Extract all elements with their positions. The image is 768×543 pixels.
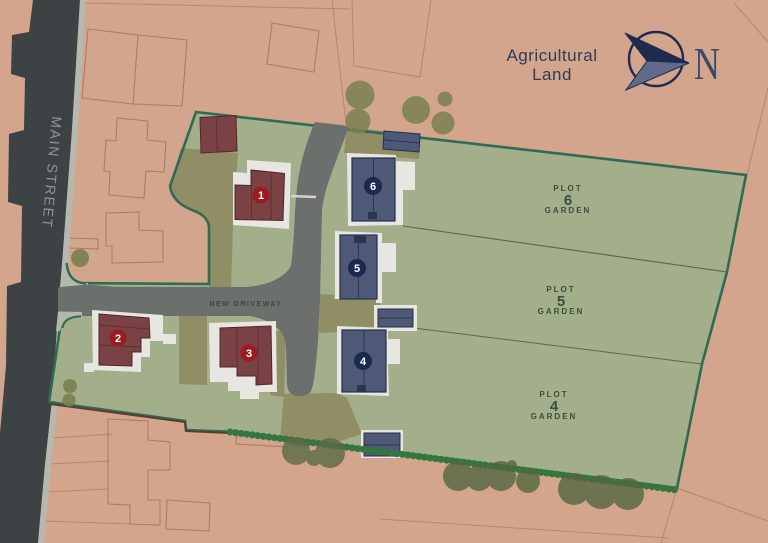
svg-text:2: 2: [115, 333, 121, 345]
svg-text:GARDEN: GARDEN: [531, 412, 578, 421]
svg-text:N: N: [694, 38, 720, 89]
svg-text:GARDEN: GARDEN: [545, 206, 592, 215]
svg-text:NEW DRIVEWAY: NEW DRIVEWAY: [210, 301, 283, 308]
svg-text:5: 5: [354, 263, 360, 275]
svg-text:Land: Land: [532, 65, 572, 84]
svg-text:6: 6: [370, 181, 376, 193]
svg-text:3: 3: [246, 348, 252, 360]
svg-text:Agricultural: Agricultural: [506, 46, 597, 65]
svg-text:1: 1: [258, 190, 264, 202]
svg-text:GARDEN: GARDEN: [538, 307, 585, 316]
svg-text:4: 4: [360, 356, 367, 368]
